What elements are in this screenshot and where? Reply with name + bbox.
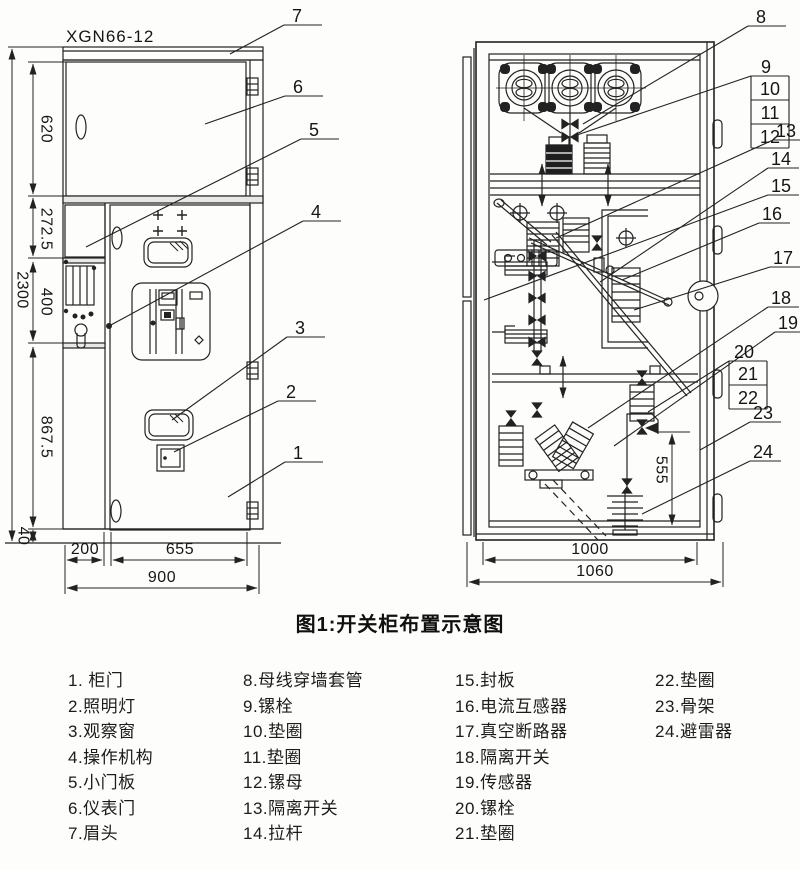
legend-item-24: 24.避雷器 [655, 719, 733, 745]
lower-shelf [492, 356, 698, 398]
model-label: XGN66-12 [66, 27, 154, 46]
front-callouts: 7 6 5 4 3 2 1 [86, 6, 341, 497]
legend-item-3: 3.观察窗 [68, 719, 153, 745]
dim-side-total-width: 1060 [576, 563, 614, 580]
switchgear-diagram: XGN66-12 [0, 0, 800, 665]
side-dimensions: 555 1000 1060 [467, 432, 723, 587]
upper-shelf [490, 164, 700, 223]
legend-item-2: 2.照明灯 [68, 694, 153, 720]
instrument-door [66, 62, 258, 196]
legend-item-19: 19.传感器 [455, 770, 568, 796]
dim-overall-height: 2300 [14, 271, 31, 309]
legend-item-21: 21.垫圈 [455, 821, 568, 847]
small-door-plate [65, 205, 105, 257]
dim-seg-upper: 272.5 [38, 208, 55, 251]
legend-column-1: 1. 柜门 2.照明灯 3.观察窗 4.操作机构 5.小门板 6.仪表门 7.眉… [68, 668, 153, 847]
callout-2: 2 [286, 382, 296, 402]
legend-column-2: 8.母线穿墙套管 9.镙栓 10.垫圈 11.垫圈 12.镙母 13.隔离开关 … [243, 668, 363, 847]
callout-11: 11 [761, 103, 780, 123]
legend-item-15: 15.封板 [455, 668, 568, 694]
wall-bushings [496, 55, 646, 121]
front-view: XGN66-12 [5, 27, 281, 543]
callout-23: 23 [753, 403, 773, 423]
dim-total-width: 900 [148, 569, 176, 586]
callout-9: 9 [761, 57, 771, 77]
legend-item-6: 6.仪表门 [68, 796, 153, 822]
callout-3: 3 [295, 318, 305, 338]
callout-4: 4 [311, 202, 321, 222]
dim-inner-width: 1000 [571, 541, 609, 558]
callout-5: 5 [309, 120, 319, 140]
legend-column-3: 15.封板 16.电流互感器 17.真空断路器 18.隔离开关 19.传感器 2… [455, 668, 568, 847]
legend-column-4: 22.垫圈 23.骨架 24.避雷器 [655, 668, 733, 745]
dim-seg-mid: 400 [38, 288, 55, 316]
callout-17: 17 [773, 248, 793, 268]
busbar-hardware [524, 106, 616, 174]
dim-seg-top: 620 [38, 115, 55, 143]
front-dimensions: 2300 620 272.5 400 867.5 40 200 655 900 [8, 47, 259, 594]
drawing-sheet: XGN66-12 [0, 0, 800, 870]
legend-item-5: 5.小门板 [68, 770, 153, 796]
legend-item-14: 14.拉杆 [243, 821, 363, 847]
legend-item-1: 1. 柜门 [68, 668, 153, 694]
legend-item-8: 8.母线穿墙套管 [243, 668, 363, 694]
legend-item-9: 9.镙栓 [243, 694, 363, 720]
legend-item-23: 23.骨架 [655, 694, 733, 720]
operation-mechanism [132, 283, 210, 360]
callout-14: 14 [771, 149, 791, 169]
callout-10: 10 [760, 79, 780, 99]
callout-20: 20 [734, 342, 754, 362]
figure-caption: 图1:开关柜布置示意图 [0, 608, 800, 637]
dim-arrester-height: 555 [653, 456, 670, 484]
dim-col-width: 200 [71, 541, 99, 558]
legend-item-12: 12.镙母 [243, 770, 363, 796]
legend-item-10: 10.垫圈 [243, 719, 363, 745]
louver-panel [64, 260, 96, 348]
callout-stack-21-22: 21 22 [729, 361, 767, 409]
legend-item-22: 22.垫圈 [655, 668, 733, 694]
main-door [110, 205, 258, 530]
legend-item-18: 18.隔离开关 [455, 745, 568, 771]
callout-7: 7 [292, 6, 302, 26]
dim-seg-base: 40 [15, 527, 32, 546]
callout-19: 19 [778, 313, 798, 333]
callout-24: 24 [753, 442, 773, 462]
callout-16: 16 [762, 204, 782, 224]
callout-13: 13 [776, 121, 796, 141]
callout-21: 21 [738, 364, 758, 384]
legend-item-4: 4.操作机构 [68, 745, 153, 771]
eyebrow-panel [63, 47, 263, 60]
legend-item-11: 11.垫圈 [243, 745, 363, 771]
callout-18: 18 [771, 288, 791, 308]
legend-item-16: 16.电流互感器 [455, 694, 568, 720]
dim-seg-lower: 867.5 [38, 416, 55, 459]
legend-item-20: 20.镙栓 [455, 796, 568, 822]
upper-disconnector [494, 199, 691, 396]
callout-6: 6 [293, 77, 303, 97]
legend: 1. 柜门 2.照明灯 3.观察窗 4.操作机构 5.小门板 6.仪表门 7.眉… [0, 668, 800, 863]
frame-skeleton [463, 42, 722, 540]
legend-item-13: 13.隔离开关 [243, 796, 363, 822]
arrester [607, 490, 643, 535]
legend-item-7: 7.眉头 [68, 821, 153, 847]
legend-item-17: 17.真空断路器 [455, 719, 568, 745]
callout-1: 1 [293, 443, 303, 463]
pull-rods [529, 232, 691, 396]
dim-door-width: 655 [166, 541, 194, 558]
callout-8: 8 [756, 7, 766, 27]
callout-15: 15 [771, 176, 791, 196]
cabinet-outline [63, 60, 263, 529]
